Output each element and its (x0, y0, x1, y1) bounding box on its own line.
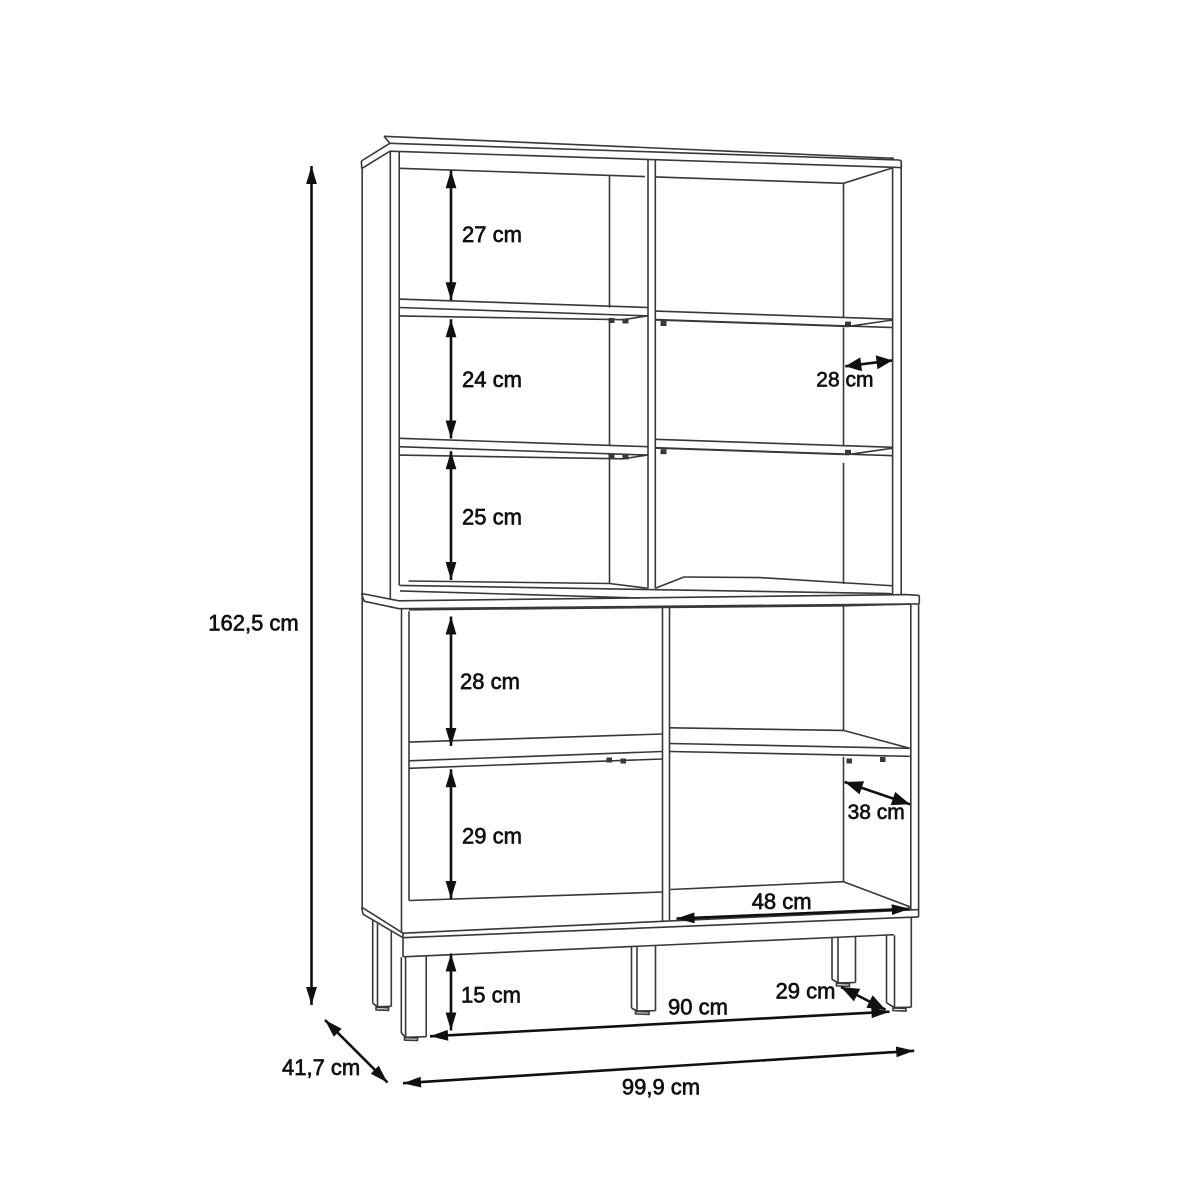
svg-text:90 cm: 90 cm (668, 995, 728, 1020)
svg-text:24 cm: 24 cm (462, 367, 522, 392)
svg-text:28 cm: 28 cm (816, 369, 873, 392)
svg-text:99,9 cm: 99,9 cm (622, 1075, 700, 1100)
svg-text:29 cm: 29 cm (776, 979, 836, 1004)
svg-text:25 cm: 25 cm (462, 505, 522, 530)
svg-text:41,7 cm: 41,7 cm (282, 1055, 360, 1080)
svg-text:162,5 cm: 162,5 cm (208, 611, 299, 636)
svg-text:38 cm: 38 cm (848, 801, 905, 824)
svg-text:28 cm: 28 cm (460, 669, 520, 694)
svg-text:29 cm: 29 cm (462, 824, 522, 849)
svg-text:27 cm: 27 cm (462, 222, 522, 247)
svg-text:15 cm: 15 cm (461, 983, 521, 1008)
svg-text:48 cm: 48 cm (752, 889, 812, 914)
